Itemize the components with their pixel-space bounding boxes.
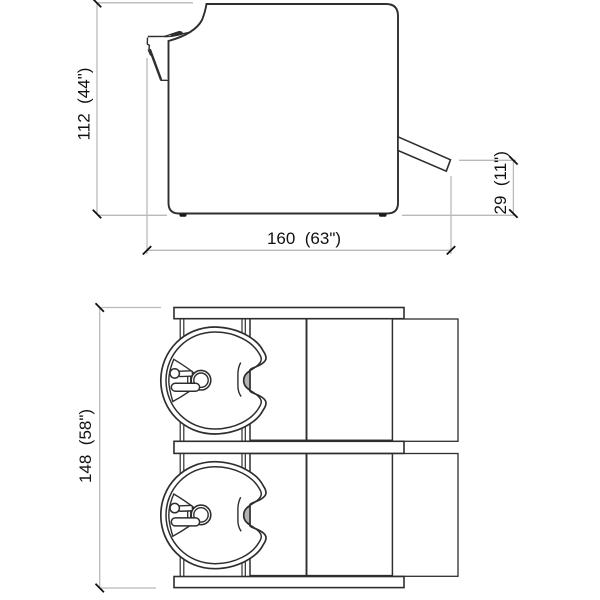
svg-text:29 (11"): 29 (11") <box>491 151 510 214</box>
svg-text:148 (58"): 148 (58") <box>76 409 95 483</box>
svg-text:160 (63"): 160 (63") <box>267 229 341 248</box>
svg-text:112 (44"): 112 (44") <box>75 68 94 141</box>
